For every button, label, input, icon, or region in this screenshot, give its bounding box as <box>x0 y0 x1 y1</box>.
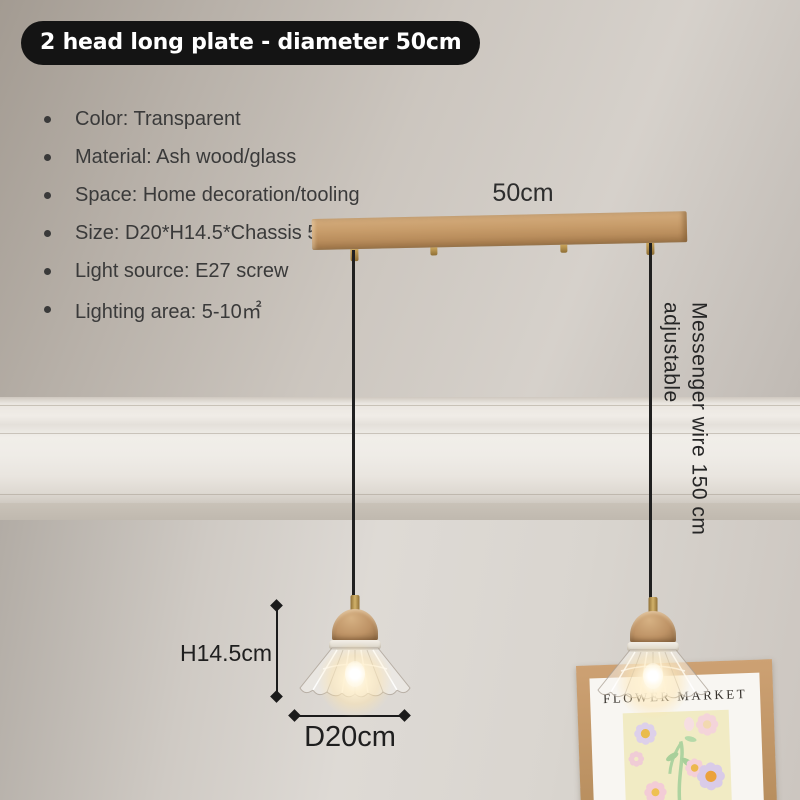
wire-length-label: Messenger wire 150 cm adjustable <box>657 302 712 535</box>
brass-peg <box>560 245 567 253</box>
spec-list: Color: Transparent Material: Ash wood/gl… <box>44 100 360 328</box>
bullet-icon <box>44 116 51 123</box>
diameter-dimension-label: D20cm <box>293 721 407 754</box>
spec-item-material: Material: Ash wood/glass <box>44 138 360 176</box>
bullet-icon <box>44 154 51 161</box>
light-bulb <box>643 663 663 689</box>
pendant-lamp-right <box>593 597 713 709</box>
height-dimension-label: H14.5cm <box>176 640 272 667</box>
flower-artwork-graphic <box>623 710 733 800</box>
spec-item-lighting-area: Lighting area: 5-10㎡ <box>44 290 360 328</box>
spec-item-light-source: Light source: E27 screw <box>44 252 360 290</box>
product-title-badge: 2 head long plate - diameter 50cm <box>21 21 480 65</box>
pendant-wire-left <box>352 250 355 602</box>
spec-item-space: Space: Home decoration/tooling <box>44 176 360 214</box>
poster-artwork <box>623 710 733 800</box>
light-bulb <box>345 661 365 687</box>
bullet-icon <box>44 192 51 199</box>
brass-peg <box>430 247 437 255</box>
plate-width-label: 50cm <box>468 179 578 208</box>
bullet-icon <box>44 268 51 275</box>
spec-item-color: Color: Transparent <box>44 100 360 138</box>
height-dimension-line <box>276 607 278 697</box>
wooden-dome-cap <box>630 611 676 644</box>
product-spec-image: 2 head long plate - diameter 50cm Color:… <box>0 0 800 800</box>
wooden-dome-cap <box>332 609 378 642</box>
bullet-icon <box>44 306 51 313</box>
pendant-lamp-left <box>295 595 415 707</box>
pendant-wire-right <box>649 243 652 604</box>
bullet-icon <box>44 230 51 237</box>
